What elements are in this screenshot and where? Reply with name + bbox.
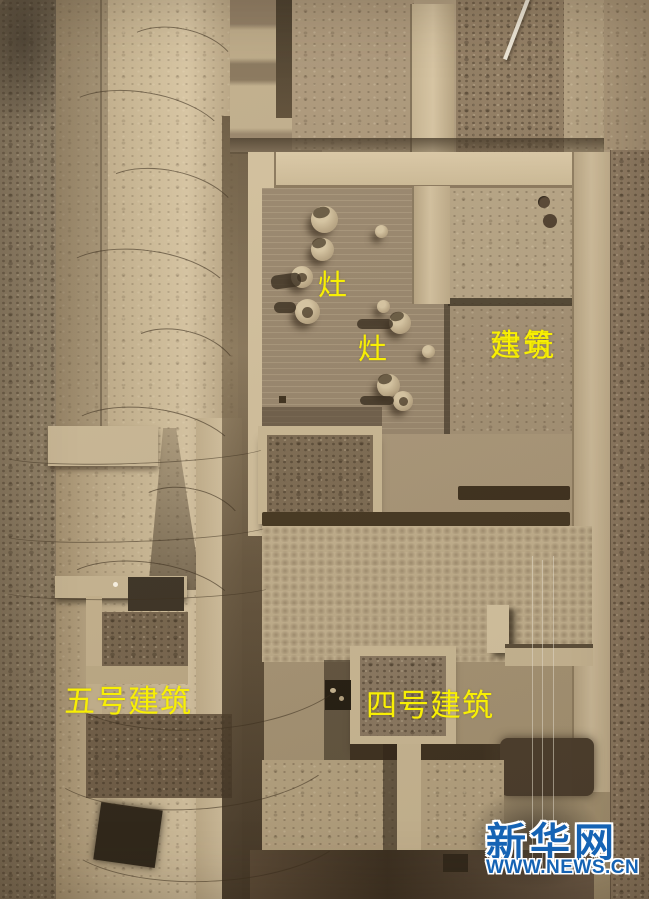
top-shadow-vertical [276, 0, 292, 118]
mound-shadow [274, 302, 296, 313]
wall-shadow-bar [458, 486, 570, 500]
posthole-pit [538, 196, 550, 208]
small-dark-pit [279, 396, 286, 403]
top-brown-column [456, 0, 564, 152]
stove-mound [393, 391, 413, 411]
mound-shadow [357, 319, 393, 329]
room-a-shadow [262, 407, 382, 428]
label-building5: 五号建筑 [64, 686, 192, 717]
mound-shadow [360, 396, 394, 405]
top-right-column [564, 0, 604, 152]
label-building6-line2: 建筑 [490, 330, 556, 361]
mid-right-wall [505, 644, 593, 666]
room-a [258, 426, 382, 524]
right-bank-top [604, 0, 649, 150]
compound-wall-top [248, 152, 604, 188]
stove-mound [377, 300, 390, 313]
posthole-pit [543, 214, 557, 228]
top-middle-ground [292, 0, 414, 150]
compound-wall-right [572, 152, 612, 792]
wall-shadow-bar [262, 512, 570, 526]
stove-mound [311, 206, 338, 233]
stove-mound [295, 299, 320, 324]
aerial-excavation-photo: 灶 灶 六号 建筑 五号建筑 四号建筑 新华网 WWW.NEWS.CN [0, 0, 649, 899]
small-dark-pit [443, 854, 468, 872]
stove-mound [422, 345, 435, 358]
stove-mound [375, 225, 388, 238]
interior-wall-shadow-horizontal [448, 298, 572, 306]
label-stove-lower: 灶 [358, 336, 387, 365]
xinhuanet-url: WWW.NEWS.CN [486, 857, 639, 879]
platform-upper-right [450, 188, 572, 304]
building6-room-floor [450, 306, 572, 434]
label-stove-upper: 灶 [318, 272, 347, 301]
wall-stub-lower [397, 744, 421, 862]
rampart-ridge-line [100, 0, 102, 430]
central-ramp [412, 186, 450, 304]
stove-mound [311, 238, 334, 261]
label-building4: 四号建筑 [366, 690, 494, 721]
